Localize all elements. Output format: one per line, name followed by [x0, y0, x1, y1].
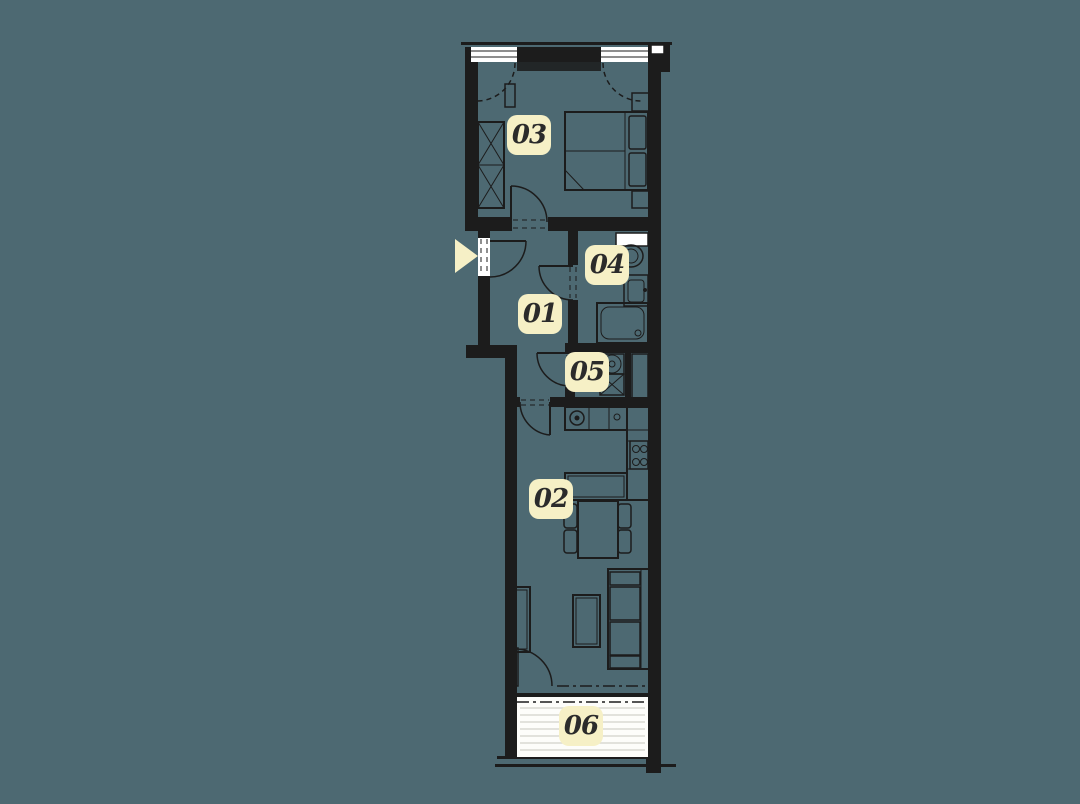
sideboard	[565, 473, 627, 500]
bathtub	[597, 303, 648, 343]
bedroom-door	[511, 186, 547, 228]
nightstand-bottom	[632, 191, 650, 208]
shaft	[632, 354, 648, 403]
entrance-door	[478, 238, 526, 277]
entrance-arrow-icon	[455, 239, 478, 273]
tv-stand	[512, 587, 530, 652]
sofa	[608, 569, 650, 669]
room-label-05: 05	[565, 352, 609, 392]
living-room-door	[520, 400, 550, 435]
room-label-01: 01	[518, 294, 562, 334]
bed	[565, 112, 648, 190]
kitchen-counter	[565, 407, 650, 500]
dining-table	[564, 501, 631, 558]
balcony-door	[512, 648, 648, 686]
floor-plan-canvas: 01 02 03 04 05 06	[0, 0, 1080, 804]
room-label-02: 02	[529, 479, 573, 519]
room-label-06: 06	[559, 706, 603, 746]
stove	[630, 441, 648, 469]
room-label-03: 03	[507, 115, 551, 155]
room-label-04: 04	[585, 245, 629, 285]
coffee-table	[573, 595, 600, 647]
nightstand-top	[632, 93, 650, 111]
